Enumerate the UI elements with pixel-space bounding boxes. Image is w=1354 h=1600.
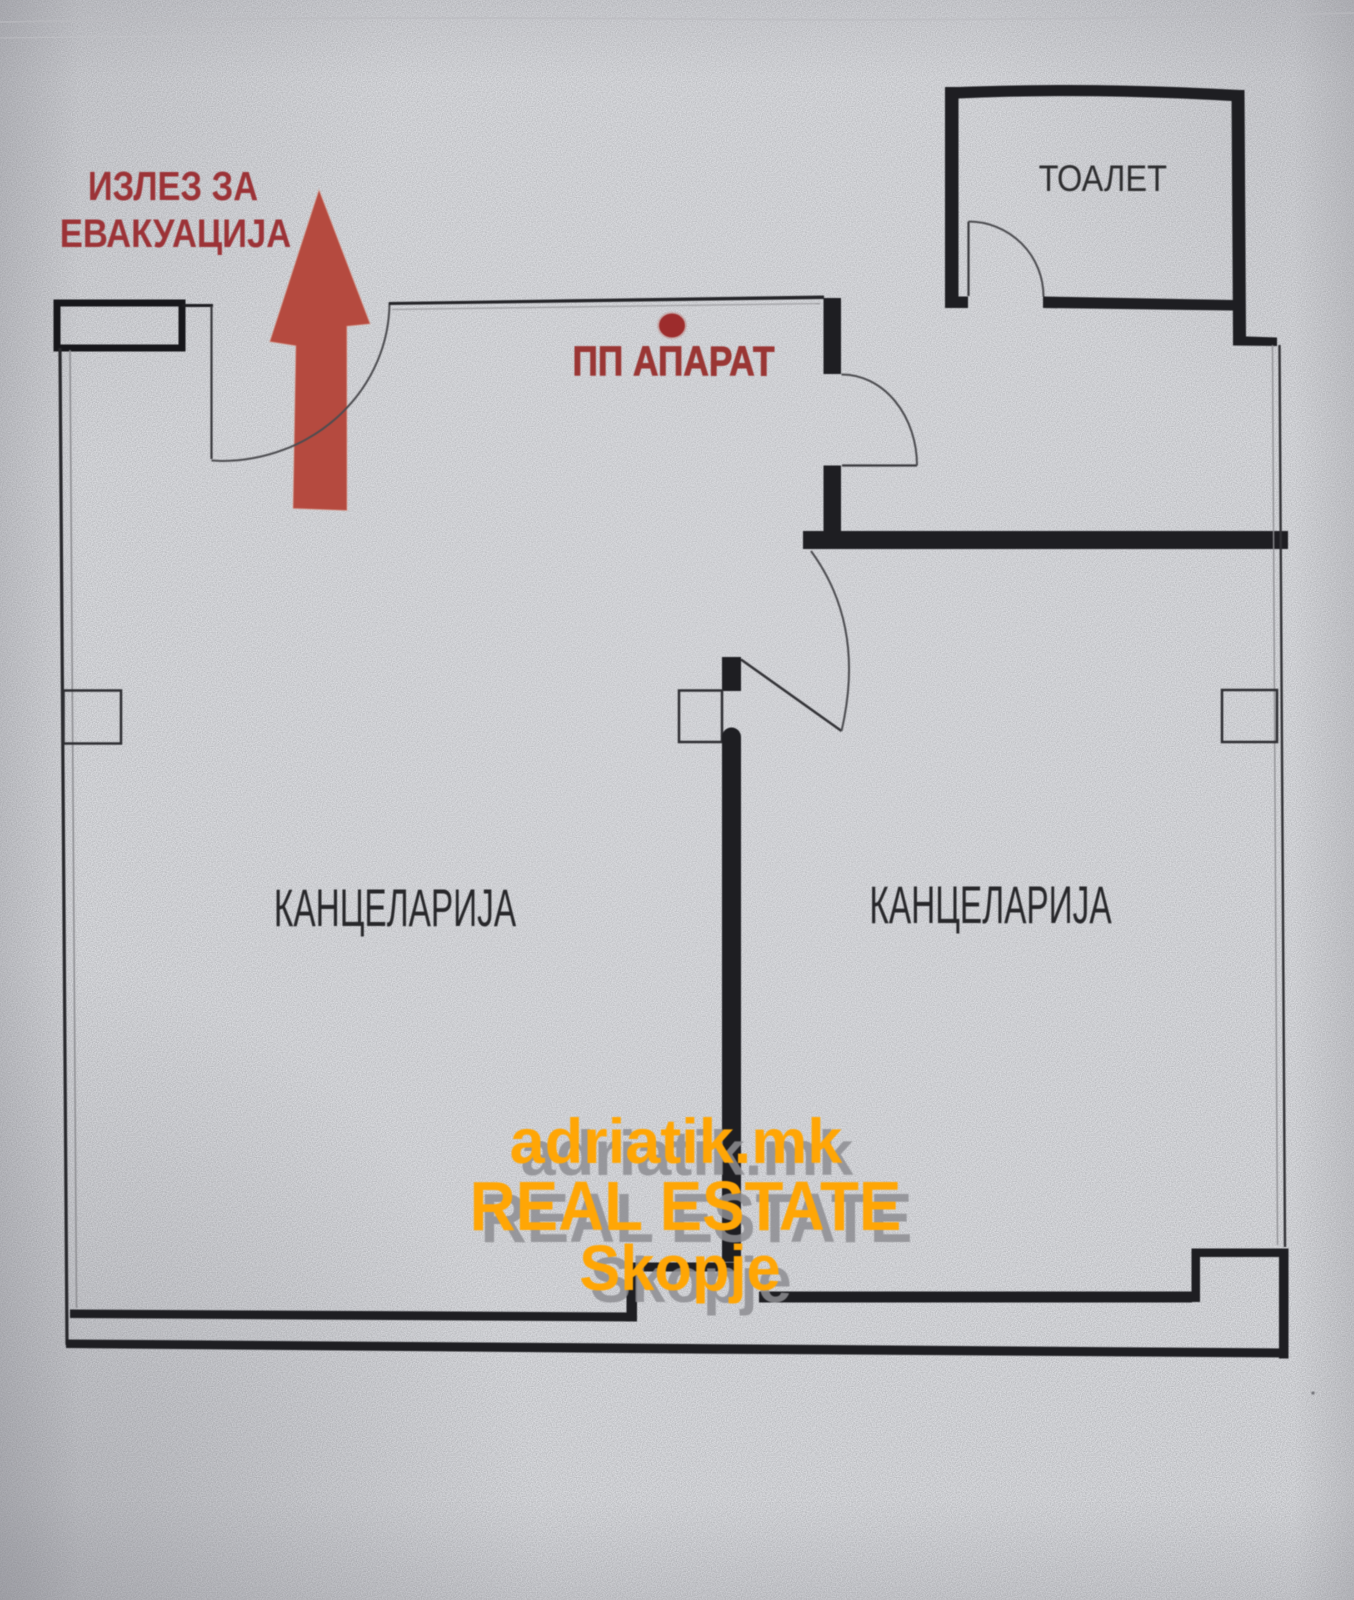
svg-text:Skopje: Skopje [579,1233,780,1304]
svg-text:ПП АПАРАТ: ПП АПАРАТ [573,339,775,386]
svg-text:КАНЦЕЛАРИЈА: КАНЦЕЛАРИЈА [869,876,1112,935]
svg-text:ИЗЛЕЗ ЗА: ИЗЛЕЗ ЗА [88,164,258,209]
svg-text:КАНЦЕЛАРИЈА: КАНЦЕЛАРИЈА [274,879,517,938]
svg-text:ТОАЛЕТ: ТОАЛЕТ [1039,158,1167,199]
svg-text:ЕВАКУАЦИЈА: ЕВАКУАЦИЈА [60,211,291,256]
